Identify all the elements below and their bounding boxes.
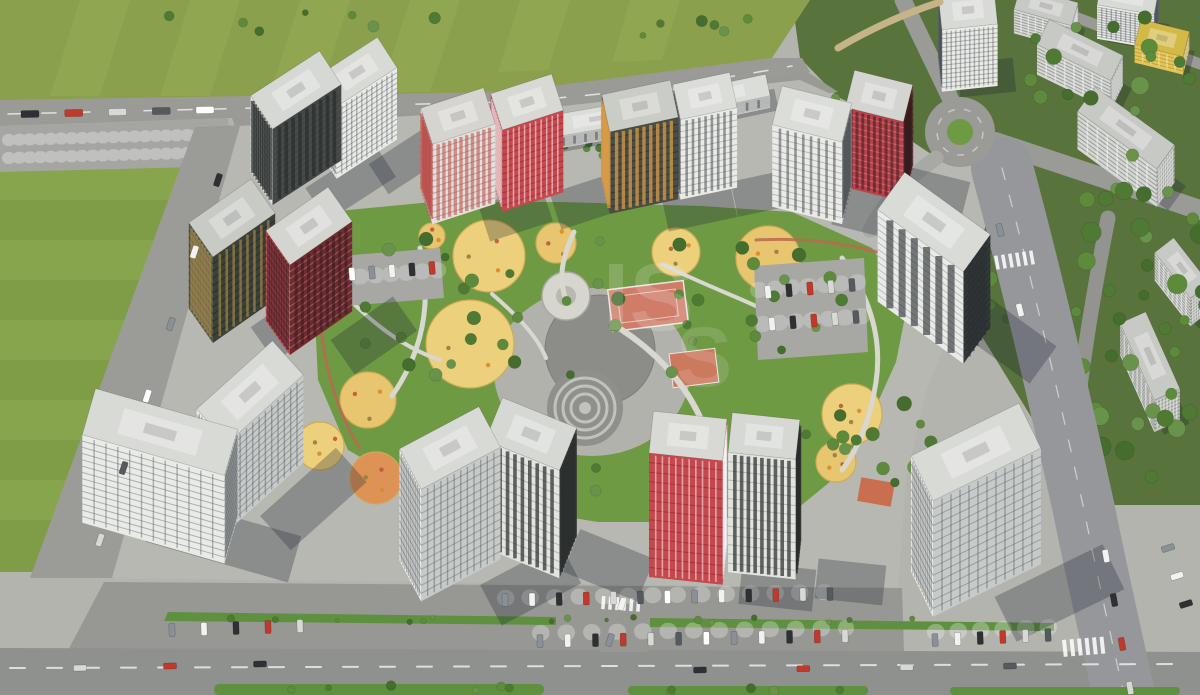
tree xyxy=(497,339,508,350)
tree xyxy=(916,420,925,429)
tree xyxy=(1024,73,1037,86)
car xyxy=(201,622,207,635)
car xyxy=(529,593,535,606)
tower-s-d-wall xyxy=(728,452,796,579)
car xyxy=(565,634,571,647)
playground-9-equipment xyxy=(849,420,853,424)
tower-ne-a xyxy=(772,86,852,224)
tree xyxy=(382,243,395,256)
tree xyxy=(590,485,601,496)
tree xyxy=(1062,89,1073,100)
car xyxy=(827,280,834,293)
tower-s-c-wall xyxy=(649,453,723,585)
tree xyxy=(1081,222,1101,242)
tree xyxy=(1157,410,1174,427)
car xyxy=(1003,663,1016,669)
car xyxy=(806,282,813,295)
tower-s-c-roof-unit xyxy=(679,431,696,442)
car xyxy=(789,316,796,329)
tree xyxy=(1162,186,1174,198)
tree xyxy=(360,302,371,313)
car xyxy=(152,107,170,114)
tree xyxy=(465,274,479,288)
tree xyxy=(566,371,574,379)
car xyxy=(842,629,848,642)
tree xyxy=(1077,252,1095,270)
car xyxy=(297,619,303,632)
tower-n-d xyxy=(673,72,737,199)
roundabout-island xyxy=(947,119,973,145)
tree xyxy=(769,686,779,695)
tree xyxy=(164,11,174,21)
car xyxy=(800,588,806,601)
tree xyxy=(419,232,433,246)
tree xyxy=(1115,182,1133,200)
tree xyxy=(839,443,850,454)
tree xyxy=(1122,354,1139,371)
tower-n-b xyxy=(491,74,564,212)
car xyxy=(814,630,820,643)
car xyxy=(583,592,589,605)
playground-7-equipment xyxy=(317,451,321,455)
car xyxy=(21,110,39,117)
car xyxy=(592,634,598,647)
playground-6-equipment xyxy=(367,417,371,421)
parking-stalls-2 xyxy=(540,628,846,633)
playground-10-equipment xyxy=(827,466,831,470)
car xyxy=(1022,629,1029,642)
playground-4-equipment xyxy=(774,250,778,254)
car xyxy=(691,590,697,603)
tree xyxy=(549,619,554,624)
tree xyxy=(1138,11,1152,25)
tree xyxy=(777,346,785,354)
tree xyxy=(505,684,513,692)
tree xyxy=(1182,405,1197,420)
tree xyxy=(877,462,890,475)
car xyxy=(764,285,771,298)
tree xyxy=(630,614,636,620)
city-tower-1-wall xyxy=(942,24,998,92)
playground-5-equipment xyxy=(486,363,490,367)
tree xyxy=(1105,350,1117,362)
playground-6-equipment xyxy=(378,390,382,394)
car xyxy=(389,264,396,277)
car xyxy=(253,661,266,667)
tower-s-d-shadow xyxy=(815,559,887,606)
tree xyxy=(302,10,308,16)
playground-7-equipment xyxy=(333,437,337,441)
tree xyxy=(836,686,844,694)
inner-lot-east xyxy=(754,258,868,360)
tree xyxy=(747,257,760,270)
tree xyxy=(255,27,264,36)
tree xyxy=(1083,91,1098,106)
car xyxy=(848,278,855,291)
car xyxy=(409,263,416,276)
tree xyxy=(1046,49,1062,65)
car xyxy=(233,621,239,634)
playground-10-equipment xyxy=(833,453,837,457)
tree xyxy=(1139,290,1149,300)
tree xyxy=(1174,56,1185,67)
tree xyxy=(736,241,749,254)
spiral-center xyxy=(579,402,591,414)
tree xyxy=(421,618,427,624)
car xyxy=(502,593,508,606)
car xyxy=(108,108,126,115)
tree xyxy=(1034,90,1048,104)
tree xyxy=(709,619,715,625)
tree xyxy=(1131,218,1150,237)
car xyxy=(1045,628,1052,641)
tree xyxy=(441,253,449,261)
tree xyxy=(1130,106,1140,116)
tree xyxy=(288,686,295,693)
tree xyxy=(564,615,571,622)
tree xyxy=(348,11,356,19)
tree xyxy=(743,14,752,23)
tower-n-c xyxy=(602,80,678,214)
tree xyxy=(497,682,506,691)
car xyxy=(831,312,838,325)
tree xyxy=(1107,21,1119,33)
tree xyxy=(467,311,481,325)
car xyxy=(65,109,83,116)
tree xyxy=(1103,285,1115,297)
tower-n-c-wall xyxy=(610,117,679,214)
playground-9-equipment xyxy=(857,409,861,413)
tree xyxy=(1146,51,1156,61)
tower-n-d-wall xyxy=(680,108,737,200)
tree xyxy=(1113,313,1126,326)
tree xyxy=(746,683,755,692)
tree xyxy=(696,15,707,26)
tree xyxy=(1131,417,1144,430)
tree xyxy=(591,463,600,472)
car xyxy=(719,589,725,602)
tree xyxy=(506,269,515,278)
tree xyxy=(1126,149,1139,162)
tree xyxy=(605,618,609,622)
car xyxy=(537,634,543,647)
tree xyxy=(1131,77,1149,95)
tree xyxy=(837,431,850,444)
playground-9-equipment xyxy=(839,404,843,408)
car xyxy=(932,633,939,646)
car xyxy=(196,106,214,113)
tree xyxy=(897,396,912,411)
car xyxy=(648,633,654,646)
car xyxy=(163,663,176,669)
playground-2-equipment xyxy=(560,229,564,233)
median-1 xyxy=(214,684,544,695)
tree xyxy=(1115,441,1134,460)
tree xyxy=(1183,73,1195,85)
tree xyxy=(402,358,415,371)
median-3 xyxy=(950,687,1180,695)
tree xyxy=(719,26,729,36)
playground-2-equipment xyxy=(546,241,550,245)
tree xyxy=(656,20,664,28)
car xyxy=(693,667,706,673)
tree xyxy=(827,439,839,451)
car xyxy=(746,589,752,602)
car xyxy=(73,665,86,671)
car xyxy=(676,632,682,645)
tree xyxy=(801,430,810,439)
tree xyxy=(835,294,847,306)
tree xyxy=(407,619,413,625)
tree xyxy=(562,296,571,305)
tree xyxy=(694,616,702,624)
car xyxy=(954,632,961,645)
car xyxy=(797,666,810,672)
tree xyxy=(472,687,479,694)
tower-n-a xyxy=(421,88,496,225)
tree xyxy=(227,615,234,622)
car xyxy=(977,631,984,644)
car xyxy=(169,623,175,636)
tree xyxy=(1071,307,1081,317)
tree xyxy=(692,294,704,306)
tree xyxy=(710,20,719,29)
playground-4-equipment xyxy=(756,251,760,255)
tree xyxy=(826,620,831,625)
tree xyxy=(430,616,434,620)
tree xyxy=(1159,322,1171,334)
car xyxy=(731,631,737,644)
tree xyxy=(1166,388,1178,400)
tree xyxy=(368,21,379,32)
tree xyxy=(386,681,396,691)
tree xyxy=(1098,191,1113,206)
tower-s-d-roof-unit xyxy=(756,431,772,441)
car xyxy=(556,592,562,605)
tree xyxy=(751,615,757,621)
tree xyxy=(1079,192,1094,207)
tree xyxy=(1187,213,1199,225)
car xyxy=(773,588,779,601)
car xyxy=(664,590,670,603)
median-1 xyxy=(214,684,544,695)
tree xyxy=(750,331,761,342)
tree xyxy=(272,616,278,622)
tree xyxy=(1071,22,1082,33)
tree xyxy=(512,312,523,323)
tree xyxy=(851,435,862,446)
tower-s-d xyxy=(728,413,800,580)
tree xyxy=(909,616,915,622)
inner-lot-east xyxy=(754,258,868,360)
watermark-fragment: S xyxy=(676,310,732,404)
scene-canvas: ISS xyxy=(0,0,1200,695)
tree xyxy=(1179,315,1189,325)
car xyxy=(369,266,376,279)
car xyxy=(620,633,626,646)
tree xyxy=(1145,470,1158,483)
tree xyxy=(847,617,853,623)
car xyxy=(637,591,643,604)
roundabout-island xyxy=(947,119,973,145)
car xyxy=(265,620,271,633)
playground-11-equipment xyxy=(436,238,440,242)
playground-8-equipment xyxy=(380,488,384,492)
tree xyxy=(779,275,789,285)
car xyxy=(349,267,356,280)
tree xyxy=(447,359,456,368)
city-tower-1 xyxy=(938,0,997,92)
playground-1-equipment xyxy=(466,254,470,258)
tree xyxy=(792,248,806,262)
tree xyxy=(1167,274,1187,294)
tree xyxy=(1031,33,1041,43)
car xyxy=(810,314,817,327)
spiral-center xyxy=(579,402,591,414)
playground-8-equipment xyxy=(364,475,368,479)
car xyxy=(785,284,792,297)
playground-6-equipment xyxy=(353,392,357,396)
car xyxy=(786,630,792,643)
tower-s-c xyxy=(649,411,727,585)
playground-1-equipment xyxy=(496,268,500,272)
car xyxy=(900,664,913,670)
parking-stalls-2 xyxy=(540,628,846,633)
playground-11-equipment xyxy=(430,227,434,231)
playground-6 xyxy=(340,372,396,428)
car xyxy=(703,632,709,645)
tree xyxy=(508,356,521,369)
tree xyxy=(746,315,758,327)
tree xyxy=(238,18,247,27)
tree xyxy=(465,333,477,345)
aerial-render: ISS xyxy=(0,0,1200,695)
car xyxy=(1000,630,1007,643)
tree xyxy=(1136,187,1151,202)
tree xyxy=(1141,259,1153,271)
tree xyxy=(834,409,846,421)
playground-8-equipment xyxy=(379,467,383,471)
car xyxy=(610,591,616,604)
playground-7-equipment xyxy=(313,440,317,444)
tree xyxy=(890,478,899,487)
median-3 xyxy=(950,687,1180,695)
car xyxy=(429,261,436,274)
tree xyxy=(1169,347,1180,358)
city-tower-1-roof-unit xyxy=(962,6,975,15)
tree xyxy=(866,427,880,441)
tree xyxy=(325,685,331,691)
tree xyxy=(429,12,441,24)
playground-5-equipment xyxy=(446,346,450,350)
tree xyxy=(668,686,676,694)
car xyxy=(827,587,833,600)
car xyxy=(852,310,859,323)
car xyxy=(768,317,775,330)
tree xyxy=(640,32,646,38)
car xyxy=(759,631,765,644)
tree xyxy=(429,368,442,381)
tree xyxy=(335,619,339,623)
